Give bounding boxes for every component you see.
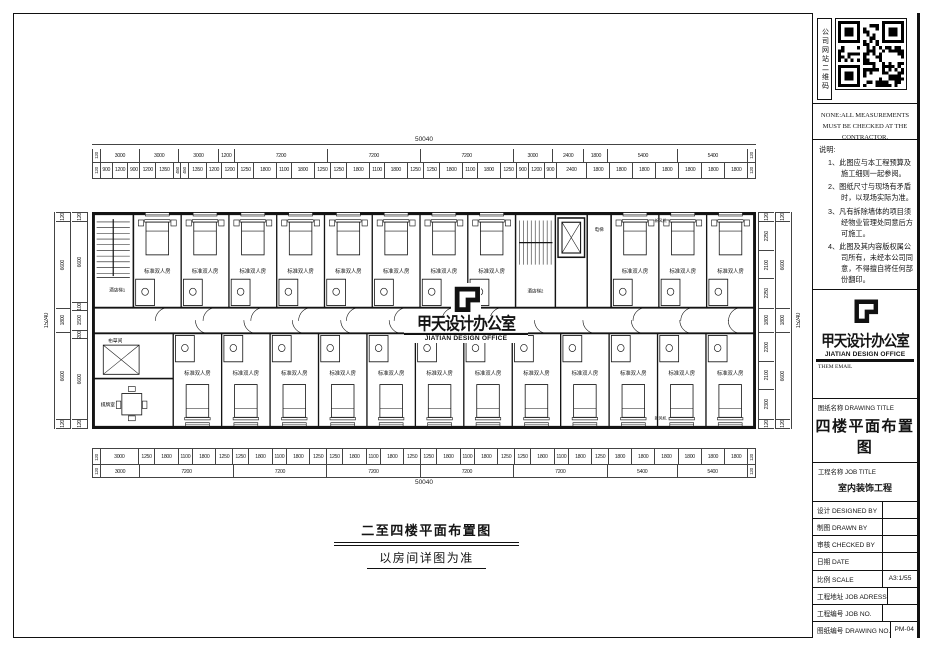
dim-segment: 1800 [586,162,609,178]
qr-section: 公司网站二维码 [813,13,917,103]
dim-label: 1200 [221,153,231,159]
door-arc [681,308,693,321]
room-label: 标准双人房 [281,369,308,377]
bed [331,385,354,418]
dim-label: 1800 [484,167,494,173]
dim-segment: 1250 [138,449,154,465]
bathroom [321,335,340,361]
nightstand [138,220,143,226]
game-table [122,394,142,415]
room-label: 标准双人房 [426,369,453,377]
dim-segment: 1250 [500,162,516,178]
dim-segment: 6600 [56,332,70,419]
bathroom [327,279,346,305]
room-label: 标准双人房 [192,267,219,275]
toilet [472,344,479,351]
dim-label: 1200 [143,167,153,173]
dim-col-right-mid: 120660018006600120 [775,212,790,429]
headboard [524,417,549,419]
room-label: 标准双人房 [669,267,696,275]
dim-segment: 1250 [407,162,423,178]
dim-segment: 1350 [155,162,173,178]
dim-segment: 1250 [420,449,436,465]
dim-label: 50040 [415,136,433,143]
bed [574,385,597,418]
note-item: 2、图纸尺寸与现场有矛盾时，以现场实际为准。 [819,182,913,204]
nightstand [171,220,176,226]
dim-segment: 2400 [552,149,584,162]
dim-label: 1250 [235,454,245,460]
dim-segment: 2250 [759,278,774,308]
dim-segment: 1800 [248,449,271,465]
nightstand [649,220,654,226]
dim-label: 1800 [662,167,672,173]
dim-segment: 1250 [314,162,330,178]
dim-segment: 120 [759,212,774,221]
dim-label: 1800 [639,167,649,173]
bed [624,222,647,255]
headboard [572,417,597,419]
dim-segment: 120 [72,419,87,428]
dim-label: 1800 [731,454,741,460]
company-logo: 甲天设计办公室 JIATIAN DESIGN OFFICE THEM EMAIL [813,289,917,375]
dim-segment: 900 [127,162,139,178]
row-label: 工程地址 JOB ADRESS [813,591,887,601]
dim-segment: 120 [56,212,70,221]
bed [719,385,742,418]
nightstand [266,220,271,226]
dim-segment: 1100 [554,449,569,465]
table-row: 日期 DATE [813,553,917,570]
bathroom [613,279,632,305]
toilet [142,288,149,295]
vent-bottom-label: 新风机 [655,414,668,420]
bathroom [183,279,202,305]
row-value [882,502,917,518]
dim-label: 7200 [276,153,286,159]
room-label: 标准双人房 [335,267,362,275]
headboard [621,417,646,419]
dim-segment: 1200 [218,149,234,162]
caption-title: 二至四楼平面布置图 [334,520,519,546]
door-arc [633,308,645,321]
dim-segment: 6600 [776,221,790,308]
dim-label: 120 [94,167,99,174]
dim-segment: 6600 [72,338,87,419]
dim-segment: 1250 [309,449,325,465]
dim-label: 1800 [780,315,786,325]
bed [242,222,265,255]
bed [186,385,209,418]
watermark-en: JIATIAN DESIGN OFFICE [404,334,528,343]
bed [671,222,694,255]
room-label: 标准双人房 [431,267,458,275]
headboard [717,417,742,419]
nightstand [616,220,621,226]
dim-label: 1250 [427,167,437,173]
toilet [237,288,244,295]
dim-label: 7200 [461,153,471,159]
qr-code [835,18,907,90]
dim-label: 1350 [192,167,202,173]
dim-row-bottom-sub: 1203000125018001100180012501250180011001… [92,448,756,465]
dim-label: 6600 [60,371,66,381]
dim-label: 1250 [501,454,511,460]
dim-segment: 1800 [286,449,309,465]
dim-label: 1100 [180,454,190,460]
toilet [521,344,528,351]
bed [146,222,169,255]
dim-label: 1800 [293,454,303,460]
logo-cn: 甲天设计办公室 [813,328,917,351]
row-label: 图纸编号 DRAWING NO. [813,625,890,635]
note-item: 1、此图应与本工程预算及施工细则一起参阅。 [819,158,913,180]
chair [128,416,135,421]
bed [525,385,548,418]
bed [428,385,451,418]
dim-label: 3000 [528,153,538,159]
panel-spacer [813,375,917,398]
dim-label: 1250 [329,454,339,460]
dim-label: 1250 [240,167,250,173]
dim-label: 120 [749,468,754,475]
dim-segment: 1200 [139,162,155,178]
row-label: 比例 SCALE [813,574,882,584]
dim-segment: 1800 [154,449,177,465]
bathroom [272,335,291,361]
table-row: 工程编号 JOB NO. [813,605,917,622]
dim-segment: 1250 [403,449,419,465]
dim-label: 1100 [465,167,475,173]
notes-section: 说明: 1、此图应与本工程预算及施工细则一起参阅。2、图纸尺寸与现场有矛盾时，以… [813,139,917,289]
table-row: 比例 SCALEA3:1/55 [813,571,917,588]
room-label: 标准双人房 [717,369,744,377]
headboard [475,417,500,419]
dim-segment: 3000 [100,449,138,465]
dim-label: 6600 [780,260,786,270]
bathroom [563,335,582,361]
row-label: 审核 CHECKED BY [813,539,882,549]
room-label: 标准双人房 [572,369,599,377]
dim-segment: 1250 [497,449,513,465]
dim-label: 1800 [387,454,397,460]
nightstand [712,220,717,226]
dim-label: 1250 [317,167,327,173]
dim-col-left-overall: 15240 [40,212,55,429]
row-value [882,519,917,535]
bed [289,222,312,255]
dim-segment: 2100 [759,361,774,389]
dim-segment: 1500 [72,310,87,329]
toilet [230,344,237,351]
row-value [882,605,917,621]
room-label: 标准双人房 [523,369,550,377]
dim-segment: 450 [180,162,188,178]
room-label: 标准双人房 [717,267,744,275]
dim-segment: 900 [516,162,528,178]
dim-segment: 5400 [677,149,747,162]
toilet [714,344,721,351]
dim-label: 1800 [615,454,625,460]
toilet [278,344,285,351]
row-label: 设计 DESIGNED BY [813,505,882,515]
dim-label: 1800 [260,167,270,173]
dim-label: 1800 [764,315,770,325]
room-label: 标准双人房 [475,369,502,377]
door-arc [346,308,358,321]
dim-label: 1200 [115,167,125,173]
dim-label: 1800 [616,167,626,173]
door-arc [292,320,304,333]
dim-label: 6600 [60,260,66,270]
dim-segment: 450 [173,162,181,178]
dim-label: 7200 [462,469,472,475]
room-label: 标准双人房 [233,369,260,377]
bathroom [709,279,728,305]
dim-label: 1800 [638,454,648,460]
dim-label: 1200 [209,167,219,173]
dim-label: 120 [77,420,83,428]
dim-label: 1800 [708,454,718,460]
bed [670,385,693,418]
dim-segment: 120 [92,162,100,178]
dim-label: 900 [102,167,110,173]
dim-segment: 200 [72,330,87,339]
measurement-note: NONE:ALL MEASUREMENTS MUST BE CHECKED AT… [813,103,917,139]
dim-label: 2100 [764,370,770,380]
dim-segment: 1800 [701,162,724,178]
note-item: 3、凡有拆除墙体的项目须经物业管理处同意后方可施工。 [819,207,913,239]
dim-label: 7200 [181,469,191,475]
dim-segment: 6600 [776,332,790,419]
dim-col-right-overall: 15240 [791,212,806,429]
dim-label: 15240 [796,313,802,328]
dim-segment: 120 [747,149,755,162]
dim-segment: 1100 [462,162,476,178]
nightstand [186,220,191,226]
notes-title: 说明: [819,145,913,156]
drawing-title: 四楼平面布置图 [813,414,917,463]
dim-label: 1800 [591,153,601,159]
dim-label: 1250 [141,454,151,460]
nightstand [282,220,287,226]
nightstand [473,220,478,226]
row-value: A3:1/55 [882,571,917,587]
dim-segment: 1800 [342,449,365,465]
table-row: 审核 CHECKED BY [813,536,917,553]
toilet [619,288,626,295]
row-label: 日期 DATE [813,556,882,566]
dim-label: 5400 [637,469,647,475]
dim-segment: 1800 [291,162,314,178]
bathroom [231,279,250,305]
dim-label: 2300 [764,399,770,409]
dim-label: 1100 [274,454,284,460]
dim-segment: 1100 [276,162,290,178]
dim-segment: 1800 [192,449,215,465]
door-arc [583,320,595,333]
dim-segment: 1800 [631,449,654,465]
logo-spiral-icon [851,296,879,324]
dim-segment: 1800 [654,449,677,465]
row-value [882,536,917,552]
dim-label: 1250 [503,167,513,173]
dim-segment: 1350 [188,162,206,178]
dim-col-right-sub: 1202250210022501800220021002300120 [758,212,774,429]
watermark-cn: 甲天设计办公室 [404,316,528,333]
dim-label: 1250 [423,454,433,460]
chair [128,387,135,392]
dim-label: 120 [94,454,99,461]
nightstand [696,220,701,226]
dim-label: 1250 [410,167,420,173]
bed [385,222,408,255]
dim-label: 3000 [115,153,125,159]
row-value [887,588,917,604]
dim-label: 2250 [764,288,770,298]
nightstand [425,220,430,226]
nightstand [329,220,334,226]
dim-segment: 1800 [530,449,553,465]
headboard [282,417,307,419]
dim-segment: 1800 [632,162,655,178]
bed [719,222,742,255]
toilet [667,288,674,295]
dim-label: 1800 [443,454,453,460]
dim-label: 1800 [685,454,695,460]
dim-segment: 3000 [513,149,552,162]
door-arc [299,308,311,321]
bed [235,385,258,418]
dim-segment: 3000 [178,149,217,162]
dim-label: 900 [546,167,554,173]
toilet [715,288,722,295]
nightstand [314,220,319,226]
bathroom [660,335,679,361]
room-label: 标准双人房 [383,267,410,275]
dim-label: 3000 [193,153,203,159]
table-row: 设计 DESIGNED BY [813,502,917,519]
dim-segment: 1800 [474,449,497,465]
nightstand [377,220,382,226]
door-arc [244,320,256,333]
dim-row-top-sub: 1209001200900120013504504501350120012001… [92,162,756,179]
dim-segment: 1800 [608,449,631,465]
dim-label: 1800 [708,167,718,173]
dim-segment: 900 [100,162,112,178]
dim-segment: 120 [747,449,755,465]
dim-label: 900 [519,167,527,173]
door-arc [341,320,353,333]
dim-label: 450 [174,167,179,174]
dim-label: 1200 [224,167,234,173]
bathroom [224,335,243,361]
dim-label: 5400 [708,153,718,159]
dim-segment: 2100 [759,250,774,278]
job-title: 室内装饰工程 [813,478,917,502]
dim-label: 6600 [77,374,83,384]
bed [433,222,456,255]
dim-segment: 1800 [436,449,459,465]
dim-segment: 1800 [678,162,701,178]
dim-label: 120 [60,213,66,221]
dim-label: 1800 [481,454,491,460]
chair [116,401,121,408]
dim-overall-top: 50040 [92,136,756,145]
dim-label: 1800 [255,454,265,460]
dim-segment: 1250 [591,449,607,465]
nightstand [458,220,463,226]
door-arc [389,320,401,333]
dim-label: 1250 [517,454,527,460]
dim-segment: 1800 [380,449,403,465]
dim-segment: 7200 [420,149,513,162]
dim-segment: 120 [92,149,100,162]
room-label: 标准双人房 [620,369,647,377]
dim-label: 120 [780,213,786,221]
caption-subtitle: 以房间详图为准 [367,549,486,569]
dim-label: 450 [182,167,187,174]
nightstand [362,220,367,226]
logo-spiral-icon [451,283,481,313]
bathroom [175,335,194,361]
title-block-panel: 公司网站二维码 NONE:ALL MEASUREMENTS MUST BE CH… [812,13,917,638]
dim-label: 1800 [199,454,209,460]
dim-label: 7200 [275,469,285,475]
dim-segment: 120 [56,419,70,428]
dim-segment: 1250 [232,449,248,465]
dim-label: 2200 [764,342,770,352]
toilet [381,288,388,295]
bathroom [661,279,680,305]
dim-label: 120 [764,213,770,221]
nightstand [234,220,239,226]
dim-label: 5400 [707,469,717,475]
dim-segment: 3000 [100,149,139,162]
room-label: 标准双人房 [668,369,695,377]
nightstand [219,220,224,226]
toilet [375,344,382,351]
door-arc [728,320,740,333]
dim-label: 1250 [313,454,323,460]
toilet [333,288,340,295]
dim-segment: 1100 [366,449,381,465]
dim-label: 1100 [372,167,382,173]
dim-label: 2250 [764,231,770,241]
row-label: 制图 DRAWN BY [813,522,882,532]
bathroom [136,279,155,305]
toilet [424,344,431,351]
stair1-label: 酒店梯1 [109,287,125,294]
bed [194,222,217,255]
dim-segment: 1100 [460,449,475,465]
toilet [617,344,624,351]
headboard [669,417,694,419]
dim-label: 1800 [161,454,171,460]
bathroom [369,335,388,361]
dim-col-left-mid: 120660018006600120 [56,212,71,429]
dim-label: 120 [780,420,786,428]
room-label: 标准双人房 [478,267,505,275]
dim-segment: 1100 [178,449,193,465]
nightstand [410,220,415,226]
nightstand [505,220,510,226]
dim-segment: 1800 [253,162,276,178]
qr-label: 公司网站二维码 [817,18,832,100]
toilet [666,344,673,351]
dim-label: 1800 [685,167,695,173]
dim-segment: 1800 [609,162,632,178]
